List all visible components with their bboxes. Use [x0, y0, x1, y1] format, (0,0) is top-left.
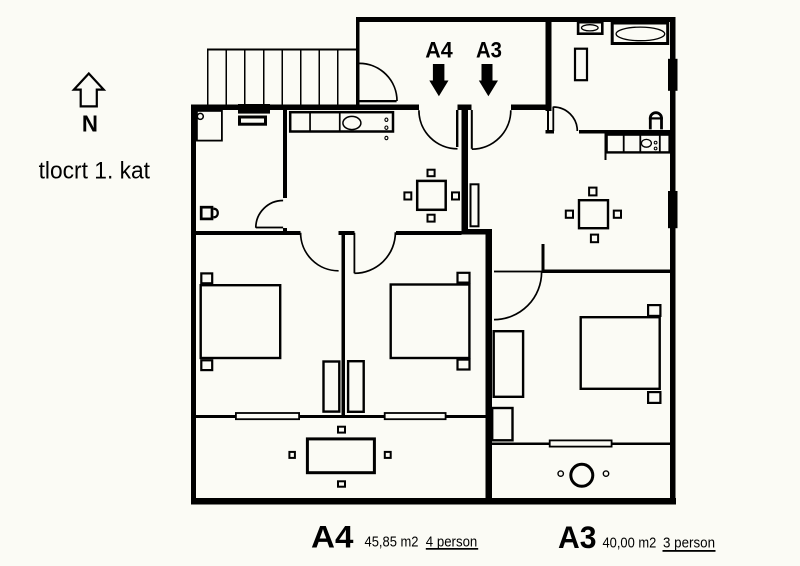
svg-text:4 person: 4 person [426, 534, 478, 551]
svg-text:N: N [82, 111, 98, 137]
svg-text:40,00 m2: 40,00 m2 [603, 535, 657, 552]
svg-text:45,85 m2: 45,85 m2 [365, 534, 419, 551]
svg-text:A3: A3 [558, 519, 597, 555]
svg-text:A3: A3 [476, 38, 502, 63]
svg-text:A4: A4 [311, 520, 354, 555]
svg-text:tlocrt 1. kat: tlocrt 1. kat [39, 159, 151, 185]
svg-text:A4: A4 [425, 38, 453, 63]
svg-text:3 person: 3 person [663, 535, 715, 552]
